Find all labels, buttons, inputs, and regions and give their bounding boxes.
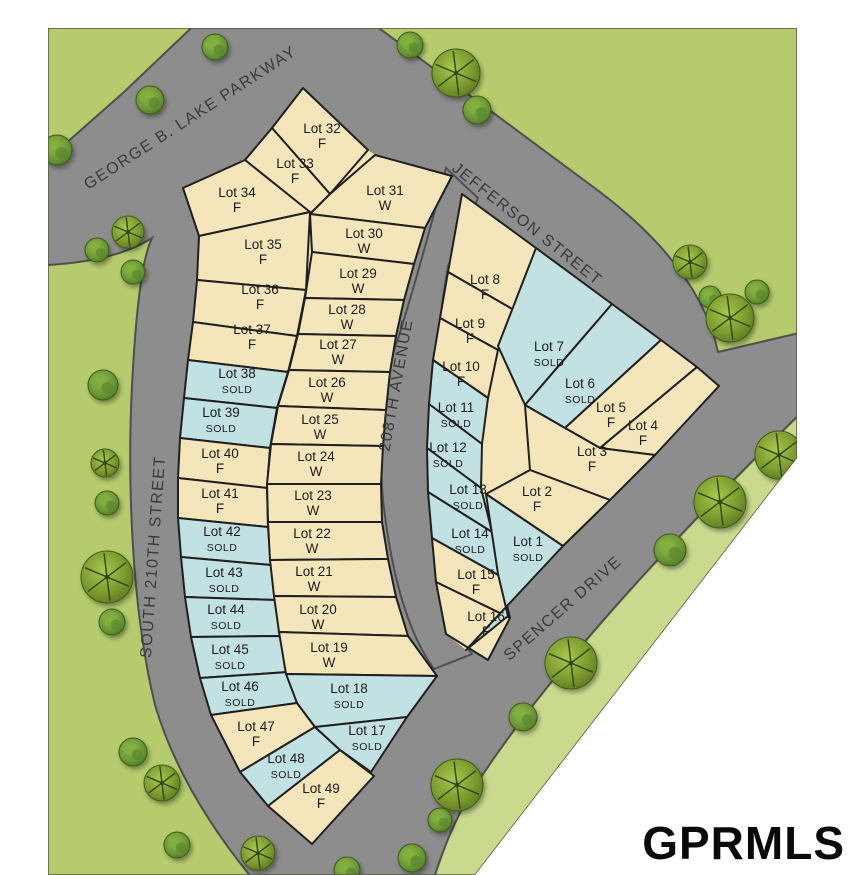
- bush-icon: [136, 86, 164, 114]
- lot-label: Lot 19: [310, 640, 348, 655]
- bush-icon: [95, 491, 119, 515]
- lot-status: F: [248, 337, 256, 352]
- lot-label: Lot 14: [451, 526, 489, 541]
- lot-status: SOLD: [433, 458, 464, 470]
- lot-label: Lot 38: [218, 366, 256, 381]
- lot-status: W: [379, 198, 392, 213]
- lot-status: SOLD: [441, 418, 472, 430]
- tree-icon: [432, 49, 480, 97]
- bush-icon: [428, 808, 452, 832]
- lot-label: Lot 10: [442, 359, 480, 374]
- subdivision-plat-map: Lot 32FLot 33FLot 34FLot 35FLot 36FLot 3…: [0, 0, 853, 875]
- lot-status: SOLD: [206, 423, 237, 435]
- tree-icon: [112, 216, 144, 248]
- lot-label: Lot 33: [276, 156, 314, 171]
- lot-status: SOLD: [455, 544, 486, 556]
- lot-status: W: [358, 241, 371, 256]
- gprmls-logo: GPRMLS: [642, 816, 845, 870]
- lot-status: SOLD: [453, 500, 484, 512]
- lot-label: Lot 6: [565, 376, 595, 391]
- bush-icon: [398, 844, 426, 872]
- lot-label: Lot 34: [218, 185, 256, 200]
- lot-status: F: [259, 252, 267, 267]
- bush-icon: [121, 260, 145, 284]
- lot-status: SOLD: [513, 552, 544, 564]
- lot-status: F: [233, 200, 241, 215]
- bush-icon: [88, 370, 118, 400]
- lot-status: F: [457, 374, 465, 389]
- tree-icon: [431, 759, 483, 811]
- lot-label: Lot 9: [455, 316, 485, 331]
- lot-status: SOLD: [334, 699, 365, 711]
- tree-icon: [545, 637, 597, 689]
- lot-status: F: [216, 461, 224, 476]
- lot-status: W: [307, 503, 320, 518]
- lot-status: W: [321, 390, 334, 405]
- tree-icon: [241, 836, 275, 870]
- lot-label: Lot 24: [297, 449, 335, 464]
- lot-status: SOLD: [211, 620, 242, 632]
- lot-label: Lot 43: [205, 565, 243, 580]
- lot-status: F: [466, 331, 474, 346]
- lot-label: Lot 42: [203, 524, 241, 539]
- lot-label: Lot 31: [366, 183, 404, 198]
- lot-label: Lot 2: [522, 484, 552, 499]
- lot-status: W: [314, 427, 327, 442]
- lot-status: F: [317, 796, 325, 811]
- lot-label: Lot 45: [211, 642, 249, 657]
- lot-status: W: [306, 541, 319, 556]
- lot-label: Lot 7: [534, 339, 564, 354]
- lot-label: Lot 41: [201, 486, 239, 501]
- tree-icon: [706, 294, 754, 342]
- lot-status: F: [639, 433, 647, 448]
- bush-icon: [508, 846, 532, 870]
- bush-icon: [164, 832, 190, 858]
- tree-icon: [81, 551, 133, 603]
- lot-status: W: [308, 579, 321, 594]
- lot-label: Lot 20: [299, 602, 337, 617]
- lot-status: SOLD: [565, 394, 596, 406]
- bush-icon: [119, 738, 147, 766]
- lot-status: F: [252, 734, 260, 749]
- lot-status: SOLD: [534, 357, 565, 369]
- lot-status: F: [216, 501, 224, 516]
- lot-status: F: [472, 582, 480, 597]
- lot-polygon-lot-21: [270, 559, 396, 597]
- lot-status: F: [481, 287, 489, 302]
- lot-label: Lot 16: [467, 609, 505, 624]
- lot-label: Lot 8: [470, 272, 500, 287]
- bush-icon: [654, 534, 686, 566]
- lot-label: Lot 30: [345, 226, 383, 241]
- tree-icon: [144, 765, 180, 801]
- map-area: Lot 32FLot 33FLot 34FLot 35FLot 36FLot 3…: [0, 0, 853, 875]
- bush-icon: [99, 609, 125, 635]
- lot-label: Lot 28: [328, 302, 366, 317]
- lot-label: Lot 11: [438, 400, 475, 415]
- bush-icon: [397, 32, 423, 58]
- lot-status: SOLD: [222, 384, 253, 396]
- lot-polygon-lot-20: [274, 596, 408, 636]
- lot-status: F: [607, 415, 615, 430]
- bush-icon: [745, 280, 769, 304]
- lot-label: Lot 32: [303, 121, 341, 136]
- tree-icon: [755, 431, 803, 479]
- lot-label: Lot 35: [244, 237, 282, 252]
- lot-status: W: [352, 281, 365, 296]
- bush-icon: [509, 703, 537, 731]
- lot-status: W: [310, 464, 323, 479]
- tree-icon: [694, 476, 746, 528]
- lot-label: Lot 23: [294, 488, 332, 503]
- tree-icon: [91, 449, 119, 477]
- lot-label: Lot 25: [301, 412, 339, 427]
- lot-status: F: [318, 136, 326, 151]
- lot-label: Lot 39: [202, 405, 240, 420]
- lot-status: SOLD: [215, 660, 246, 672]
- lot-status: SOLD: [209, 583, 240, 595]
- lot-status: F: [588, 459, 596, 474]
- lot-label: Lot 44: [207, 602, 245, 617]
- lot-label: Lot 18: [330, 681, 368, 696]
- lot-label: Lot 17: [348, 723, 386, 738]
- lot-status: F: [256, 297, 264, 312]
- lot-status: SOLD: [271, 769, 302, 781]
- lot-label: Lot 22: [293, 526, 331, 541]
- lot-status: W: [332, 352, 345, 367]
- bush-icon: [42, 135, 72, 165]
- tree-icon: [673, 245, 707, 279]
- plat-map-page: Lot 32FLot 33FLot 34FLot 35FLot 36FLot 3…: [0, 0, 853, 875]
- bush-icon: [463, 96, 491, 124]
- lot-label: Lot 48: [267, 751, 305, 766]
- lot-label: Lot 37: [233, 322, 271, 337]
- lot-label: Lot 1: [513, 534, 543, 549]
- lot-status: SOLD: [225, 697, 256, 709]
- lot-label: Lot 5: [596, 400, 626, 415]
- lot-status: SOLD: [352, 741, 383, 753]
- bush-icon: [202, 34, 228, 60]
- lot-label: Lot 29: [339, 266, 377, 281]
- lot-status: F: [482, 624, 490, 639]
- bush-icon: [85, 238, 109, 262]
- lot-label: Lot 26: [308, 375, 346, 390]
- lot-label: Lot 47: [237, 719, 275, 734]
- lot-status: W: [312, 617, 325, 632]
- lot-label: Lot 12: [429, 440, 467, 455]
- lot-status: F: [533, 499, 541, 514]
- lot-status: F: [291, 171, 299, 186]
- lot-label: Lot 49: [302, 781, 340, 796]
- lot-label: Lot 27: [319, 337, 357, 352]
- lot-label: Lot 13: [449, 482, 487, 497]
- lot-label: Lot 4: [628, 418, 659, 433]
- lot-label: Lot 21: [295, 564, 333, 579]
- lot-label: Lot 3: [577, 444, 607, 459]
- lot-label: Lot 36: [241, 282, 279, 297]
- lot-label: Lot 40: [201, 446, 239, 461]
- lot-status: SOLD: [207, 542, 238, 554]
- lot-status: W: [323, 655, 336, 670]
- lot-label: Lot 46: [221, 679, 259, 694]
- lot-status: W: [341, 317, 354, 332]
- lot-label: Lot 15: [457, 567, 495, 582]
